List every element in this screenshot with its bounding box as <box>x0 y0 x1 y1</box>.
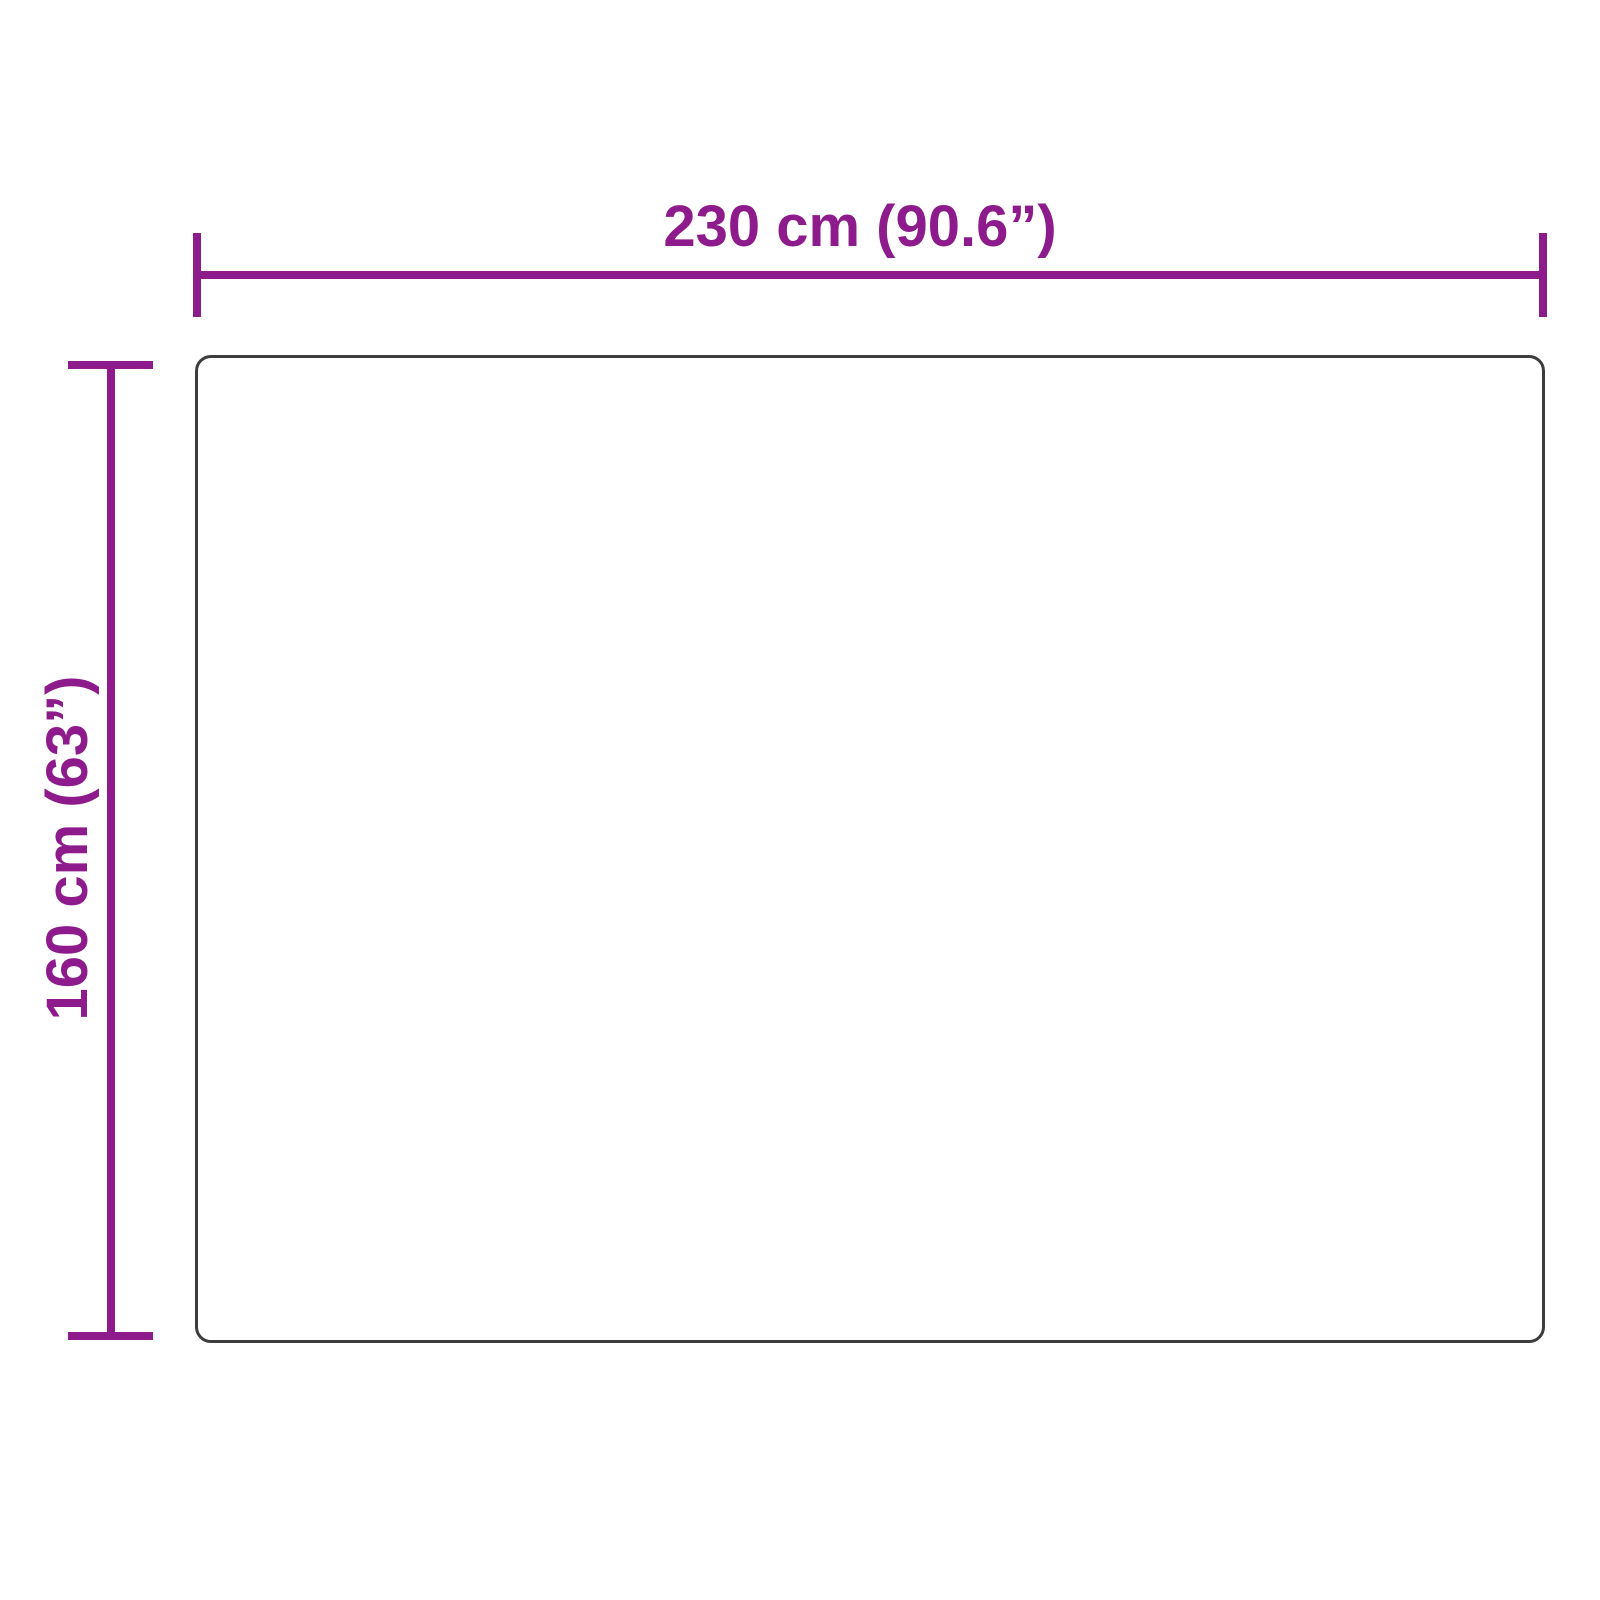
height-dimension-bottom-tick <box>68 1332 153 1340</box>
width-dimension-right-tick <box>1539 233 1547 317</box>
width-dimension-line <box>195 271 1547 279</box>
height-dimension-top-tick <box>68 361 153 369</box>
height-dimension-label: 160 cm (63”) <box>39 676 97 1021</box>
dimension-diagram: 230 cm (90.6”) 160 cm (63”) <box>0 0 1600 1600</box>
width-dimension-left-tick <box>193 233 201 317</box>
width-dimension-label: 230 cm (90.6”) <box>663 198 1056 256</box>
product-outline <box>195 355 1545 1343</box>
height-dimension-line <box>107 363 115 1338</box>
